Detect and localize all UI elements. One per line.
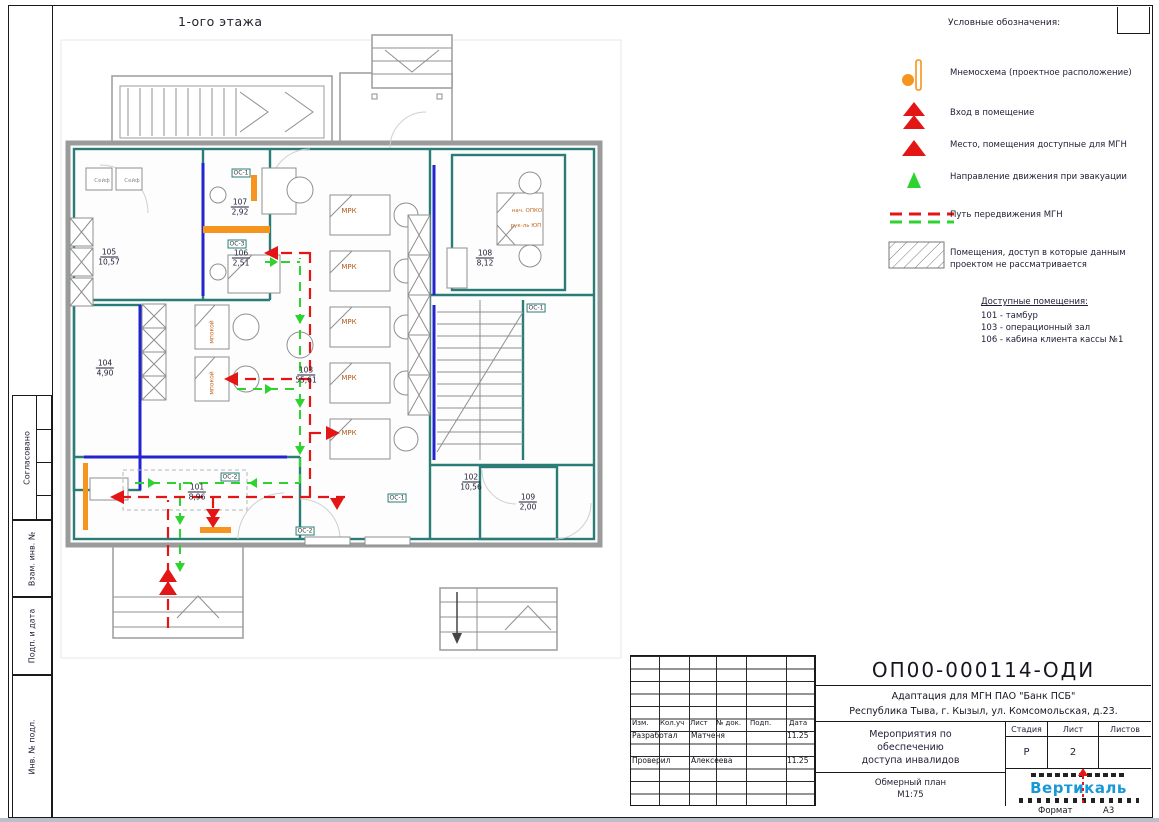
col-izm: Изм. bbox=[632, 719, 648, 727]
legend-item-label: Помещения, доступ в которые даннымпроект… bbox=[950, 247, 1155, 271]
object-line2: Республика Тыва, г. Кызыл, ул. Комсомоль… bbox=[816, 704, 1151, 719]
row-name: Алексеева bbox=[691, 756, 732, 765]
plan-tag: Сейф bbox=[124, 178, 140, 184]
plan-tag: ОС-1 bbox=[388, 494, 407, 503]
row-date: 11.25 bbox=[787, 731, 808, 740]
col-podp: Подп. bbox=[750, 719, 771, 727]
task-line1: Мероприятия по bbox=[816, 728, 1005, 741]
logo-red-arrow-icon bbox=[1082, 770, 1084, 806]
legend-item-label: Направление движения при эвакуации bbox=[950, 171, 1155, 183]
room-label-102: 10210,56 bbox=[460, 473, 481, 492]
company-logo: Вертикаль bbox=[1005, 768, 1151, 806]
hatch-icon bbox=[888, 238, 940, 272]
legend-item-label: Вход в помещение bbox=[950, 107, 1155, 119]
evacuation-icon bbox=[888, 162, 940, 196]
plan-tag: рук-ль ЮП bbox=[511, 223, 542, 229]
mnemo-icon bbox=[888, 58, 940, 92]
doc-scale: М1:75 bbox=[816, 789, 1005, 801]
plan-tag: нач. ОПКО bbox=[512, 208, 542, 214]
room-label-107: 1072,92 bbox=[231, 198, 249, 217]
row-role: Проверил bbox=[632, 756, 670, 765]
doc-type: Обмерный план М1:75 bbox=[815, 772, 1005, 806]
room-label-103: 10355,61 bbox=[295, 366, 316, 385]
sheets-value bbox=[1098, 737, 1151, 768]
room-label-109: 1092,00 bbox=[519, 493, 537, 512]
format-value: А3 bbox=[1103, 806, 1114, 816]
plan-tag: мпокой bbox=[209, 320, 216, 343]
room-label-108: 1088,12 bbox=[476, 249, 494, 268]
document-number: ОП00-000114-ОДИ bbox=[815, 655, 1151, 686]
plan-tag: ОС-1 bbox=[527, 304, 546, 313]
room-label-106: 1062,51 bbox=[232, 249, 250, 268]
plan-tag: ОС-2 bbox=[296, 527, 315, 536]
sheet-value: 2 bbox=[1047, 737, 1098, 768]
legend-item-label: Мнемосхема (проектное расположение) bbox=[950, 67, 1155, 79]
task-line3: доступа инвалидов bbox=[816, 754, 1005, 767]
plan-tag: МРК bbox=[341, 318, 356, 326]
plan-tag: МРК bbox=[341, 374, 356, 382]
drawing-sheet: Согласовано Взам. инв. № Подп. и дата Ин… bbox=[0, 0, 1159, 822]
task-name: Мероприятия по обеспечению доступа инвал… bbox=[815, 722, 1005, 772]
col-data: Дата bbox=[789, 719, 807, 727]
sheet-label: Лист bbox=[1047, 722, 1098, 737]
format-label: Формат bbox=[1038, 806, 1073, 816]
col-ndok: № док. bbox=[716, 719, 741, 727]
mgn-path-icon bbox=[888, 200, 940, 234]
col-koluch: Кол.уч bbox=[660, 719, 684, 727]
object-line1: Адаптация для МГН ПАО "Банк ПСБ" bbox=[816, 689, 1151, 704]
accessible-rooms-list: 101 - тамбур103 - операционный зал106 - … bbox=[981, 310, 1123, 346]
row-date: 11.25 bbox=[787, 756, 808, 765]
room-label-104: 1044,90 bbox=[96, 359, 114, 378]
row-name: Матченя bbox=[691, 731, 725, 740]
plan-tag: МРК bbox=[341, 263, 356, 271]
plan-tag: ОС-1 bbox=[232, 169, 251, 178]
logo-bottom-bar bbox=[1019, 798, 1139, 803]
plan-tag: мпокой bbox=[209, 371, 216, 394]
room-label-101: 1018,96 bbox=[188, 483, 206, 502]
accessible-room-item: 101 - тамбур bbox=[981, 310, 1123, 322]
object-name: Адаптация для МГН ПАО "Банк ПСБ" Республ… bbox=[815, 686, 1151, 722]
entrance-icon bbox=[888, 98, 940, 132]
plan-tag: Сейф bbox=[94, 178, 110, 184]
col-list: Лист bbox=[690, 719, 708, 727]
plan-tag: ОС-3 bbox=[228, 240, 247, 249]
accessible-rooms-title: Доступные помещения: bbox=[981, 296, 1123, 308]
row-role: Разработал bbox=[632, 731, 677, 740]
stage-value: Р bbox=[1005, 737, 1047, 768]
doc-type-name: Обмерный план bbox=[816, 777, 1005, 789]
stage-label: Стадия bbox=[1005, 722, 1047, 737]
plan-tag: МРК bbox=[341, 429, 356, 437]
sheets-label: Листов bbox=[1098, 722, 1151, 737]
room-label-105: 10510,57 bbox=[98, 248, 119, 267]
accessible-room-item: 103 - операционный зал bbox=[981, 322, 1123, 334]
mgn-place-icon bbox=[888, 130, 940, 164]
accessible-room-item: 106 - кабина клиента кассы №1 bbox=[981, 334, 1123, 346]
legend-title: Условные обозначения: bbox=[948, 18, 1060, 28]
accessible-rooms-note: Доступные помещения: 101 - тамбур103 - о… bbox=[981, 296, 1123, 346]
task-line2: обеспечению bbox=[816, 741, 1005, 754]
logo-name: Вертикаль bbox=[1030, 779, 1127, 797]
plan-tag: МРК bbox=[341, 207, 356, 215]
plan-tag: ОС-2 bbox=[221, 473, 240, 482]
legend-item-label: Место, помещения доступные для МГН bbox=[950, 139, 1155, 151]
legend-item-label: Путь передвижения МГН bbox=[950, 209, 1155, 221]
